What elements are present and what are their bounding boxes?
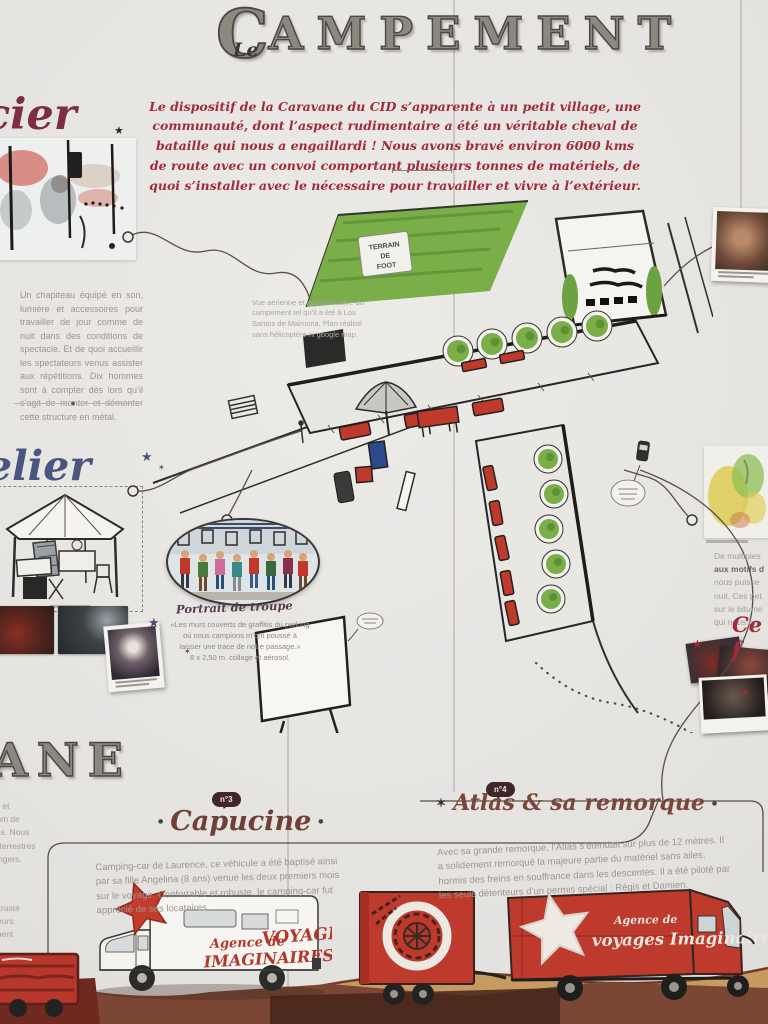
text-line: nous puisse (714, 576, 768, 589)
chapter-title-fragment: ANE (0, 733, 132, 787)
svg-text:Agence de: Agence de (613, 913, 678, 927)
panel-seam (740, 0, 742, 214)
atelier-heading-fragment: elier (0, 442, 91, 490)
profile-photo (715, 211, 768, 271)
dot-icon: ● (158, 818, 163, 825)
capucine-paragraph: Camping-car de Laurence, ce véhicule a é… (95, 854, 344, 917)
photo-cluster-item (699, 674, 768, 733)
photo (702, 677, 766, 719)
star-icon: ★ (740, 688, 750, 699)
left-heading-fragment: cier (0, 90, 77, 140)
title-le: Le (233, 20, 258, 80)
chapiteau-watercolor (0, 138, 136, 260)
svg-text:voyages Imaginaires: voyages Imaginaires (592, 928, 768, 950)
troupe-figures (180, 550, 308, 591)
star-icon: ✶ (158, 464, 165, 472)
atlas-title: Atlas & sa remorque (453, 790, 705, 816)
title-initial: CLe (216, 4, 269, 64)
title-rest: AMPEMENT (269, 7, 685, 60)
tiny-caption (706, 540, 748, 543)
red-crate (355, 466, 372, 482)
chapiteau-watercolor-sketch (0, 138, 136, 260)
portrait-photo (108, 626, 160, 680)
edge-text-fragment: ne a contrasté ses couleurs gréablement (0, 902, 78, 942)
portrait-polaroid (103, 622, 165, 693)
page-title: CLeAMPEMENT (216, 4, 684, 64)
photo-night-tent (0, 606, 54, 654)
portrait-caption: «Les murs couverts de graffitis du parki… (160, 620, 320, 664)
graffiti-building (556, 211, 666, 325)
atlas-trailer-illustration (356, 886, 508, 1011)
divider: ◆ (14, 400, 132, 407)
handwritten-caption (115, 683, 149, 688)
capucine-number-badge: n°3 (212, 792, 241, 807)
dark-van (334, 471, 355, 503)
capucine-heading: ● Capucine ● (158, 806, 324, 837)
blue-table (368, 441, 387, 469)
corner-red-truck-sketch (0, 938, 92, 1024)
text-line: De multiples (714, 550, 768, 563)
atelier-sketch-box (0, 486, 143, 612)
watercolor-blobs (704, 446, 768, 538)
exhibition-poster-le-campement: CLeAMPEMENT Le dispositif de la Caravane… (0, 0, 768, 1024)
intro-paragraph: Le dispositif de la Caravane du CID s’ap… (148, 97, 642, 196)
tiny-caption (718, 275, 754, 278)
atlas-heading: ✶ Atlas & sa remorque ● (436, 790, 717, 816)
star-icon: ★ (692, 638, 703, 650)
star-icon: ✶ (184, 648, 191, 656)
portrait-de-troupe-image (166, 518, 320, 606)
map-caption: Vue aérienne et approximative du campeme… (252, 298, 366, 342)
edge-text-fragment: re à bord et ets au nom de t déplacés. N… (0, 800, 78, 866)
text-line: nuit. Ces pet (714, 590, 768, 603)
capucine-title: Capucine (170, 806, 311, 837)
atlas-paragraph: Avec sa grande remorque, l’Atlas s’étend… (437, 833, 731, 903)
star-icon: ★ (114, 126, 124, 137)
profile-polaroid (711, 207, 768, 283)
terrain-de-foot-sign: TERRAIN DE FOOT (358, 231, 413, 277)
parked-car (611, 440, 650, 506)
atelier-tent-sketch (0, 487, 140, 609)
dot-icon: ● (712, 800, 717, 807)
star-icon: ✶ (436, 796, 446, 810)
right-heading-fragment: Ce f (732, 612, 768, 662)
star-icon: ★ (141, 450, 153, 463)
text-line: aux motifs d (714, 563, 768, 576)
yellow-watercolor (704, 446, 768, 538)
svg-text:DE: DE (380, 252, 391, 260)
group-graffiti-sketch (168, 520, 314, 600)
football-field (306, 201, 528, 307)
dotted-route (536, 663, 698, 733)
red-table (417, 406, 460, 437)
star-icon: ★ (148, 616, 160, 629)
banner-sign (397, 471, 415, 510)
measure-mark (392, 168, 452, 173)
dot-icon: ● (318, 818, 323, 825)
